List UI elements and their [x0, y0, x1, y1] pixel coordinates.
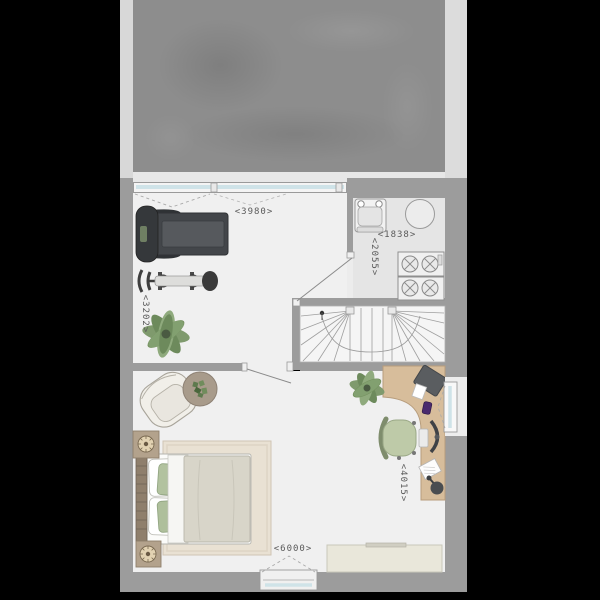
table-lamp-icon — [140, 546, 156, 562]
dresser — [327, 543, 442, 572]
headboard — [136, 457, 147, 541]
washing-machine — [398, 252, 444, 276]
laundry-door — [293, 252, 354, 306]
dimension-laundry-depth: <2055> — [369, 238, 379, 277]
bed — [136, 454, 251, 544]
nightstand-bottom — [136, 541, 161, 567]
boiler — [406, 200, 435, 229]
laundry-sink — [355, 199, 386, 232]
facade-glazing — [135, 183, 344, 207]
nightstand-top — [133, 431, 159, 458]
keyboard — [419, 429, 428, 447]
office-chair — [381, 419, 416, 460]
bottom-window — [260, 556, 317, 590]
treadmill — [136, 206, 228, 262]
dimension-bedroom-depth: <4015> — [398, 464, 408, 503]
dimension-gym-width: <3980> — [235, 207, 274, 217]
side-table — [183, 372, 217, 406]
dimension-gym-depth: <3202> — [140, 295, 150, 334]
floor-plan-canvas: <3980> <1838> <2055> <3202> <6000> <4015… — [0, 0, 600, 600]
dimension-laundry-width: <1838> — [378, 230, 417, 240]
table-lamp-icon — [138, 436, 154, 452]
weight-bench — [139, 270, 218, 292]
bedroom-door — [242, 362, 293, 383]
staircase — [300, 306, 445, 362]
dryer — [398, 277, 444, 300]
furniture-layer — [0, 0, 600, 600]
dimension-bedroom-width: <6000> — [274, 544, 313, 554]
desk-plant — [348, 369, 386, 407]
